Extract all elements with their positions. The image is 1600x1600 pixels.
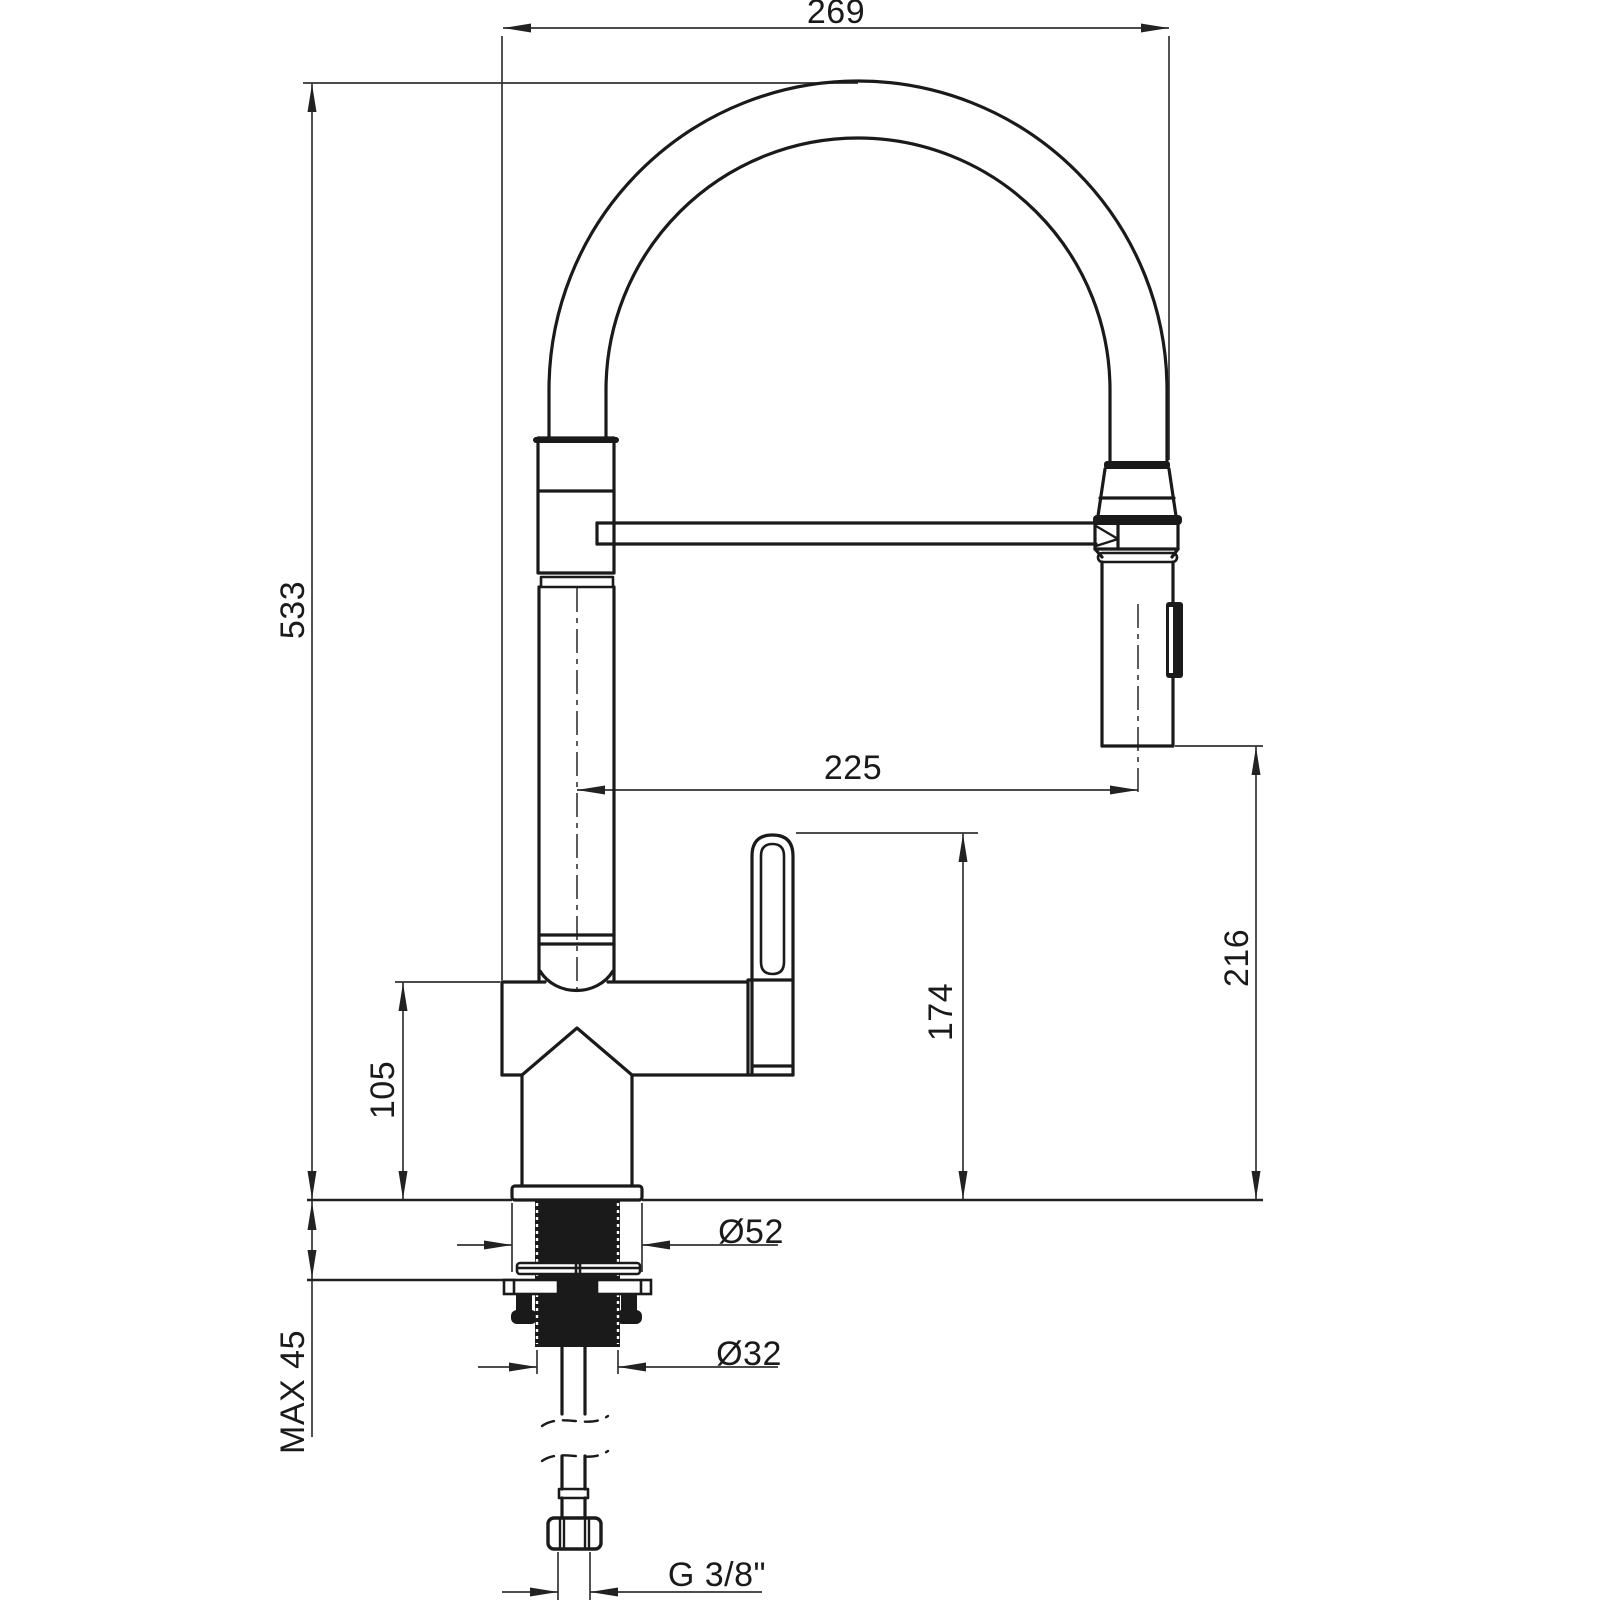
technical-drawing-page: 269 533 225 216 174 105 Ø52 Ø32 MAX 45 G… (0, 0, 1600, 1600)
riser-collar (536, 438, 616, 587)
mounting-stud-left (516, 1294, 532, 1312)
stud-foot-right (616, 1310, 642, 1324)
mixer-body (502, 982, 793, 1075)
countertop-section (307, 1200, 1263, 1280)
centerlines (577, 588, 1138, 995)
dim-spray-outlet-height-label: 216 (1218, 929, 1256, 987)
dim-supply-thread-label: G 3/8" (668, 1556, 766, 1594)
support-bar (597, 523, 1118, 546)
dim-body-top-height-label: 105 (364, 1061, 402, 1119)
lever-handle (748, 835, 793, 1075)
spray-head (1095, 469, 1178, 746)
pipe-break-symbols (542, 1416, 608, 1461)
spray-button (1166, 602, 1183, 678)
spray-head-ring (1093, 515, 1182, 525)
dim-max-deck-thickness-label: MAX 45 (274, 1330, 312, 1454)
hose-top-ring (1104, 461, 1170, 469)
dim-flange-diameter-label: Ø52 (718, 1213, 784, 1251)
solid-parts (511, 461, 1183, 1347)
dimension-arrowheads (308, 24, 1261, 1597)
mounting-nut-left (504, 1280, 558, 1294)
dim-shank-diameter-label: Ø32 (716, 1335, 782, 1373)
dim-spout-reach-label: 225 (824, 749, 882, 787)
mounting-stud-right (621, 1294, 637, 1312)
stud-foot-left (511, 1310, 537, 1324)
supply-pipe (548, 1347, 601, 1549)
solid-part-details (537, 607, 1173, 1344)
dim-overall-height-label: 533 (274, 581, 312, 639)
mounting-nut-right (597, 1280, 651, 1294)
dim-lever-top-height-label: 174 (922, 983, 960, 1041)
dim-overall-depth-label: 269 (807, 0, 865, 31)
base-column (512, 1075, 642, 1200)
dimension-labels: 269 533 225 216 174 105 Ø52 Ø32 MAX 45 G… (274, 0, 1256, 1594)
technical-drawing-canvas: 269 533 225 216 174 105 Ø52 Ø32 MAX 45 G… (0, 0, 1600, 1600)
dimension-lines (303, 28, 1263, 1600)
spout-arch (549, 81, 1167, 461)
